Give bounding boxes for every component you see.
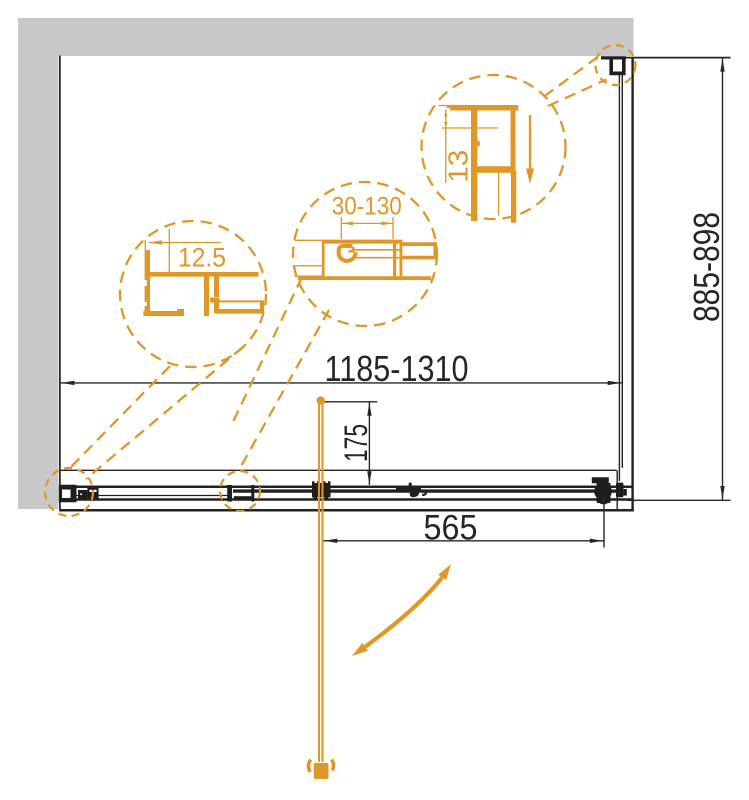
svg-text:175: 175 bbox=[338, 424, 374, 462]
svg-text:12.5: 12.5 bbox=[178, 243, 226, 273]
svg-text:885-898: 885-898 bbox=[686, 212, 727, 322]
svg-text:1185-1310: 1185-1310 bbox=[325, 348, 469, 389]
svg-text:565: 565 bbox=[424, 509, 478, 548]
svg-text:30-130: 30-130 bbox=[332, 193, 402, 221]
svg-text:13: 13 bbox=[443, 150, 474, 183]
